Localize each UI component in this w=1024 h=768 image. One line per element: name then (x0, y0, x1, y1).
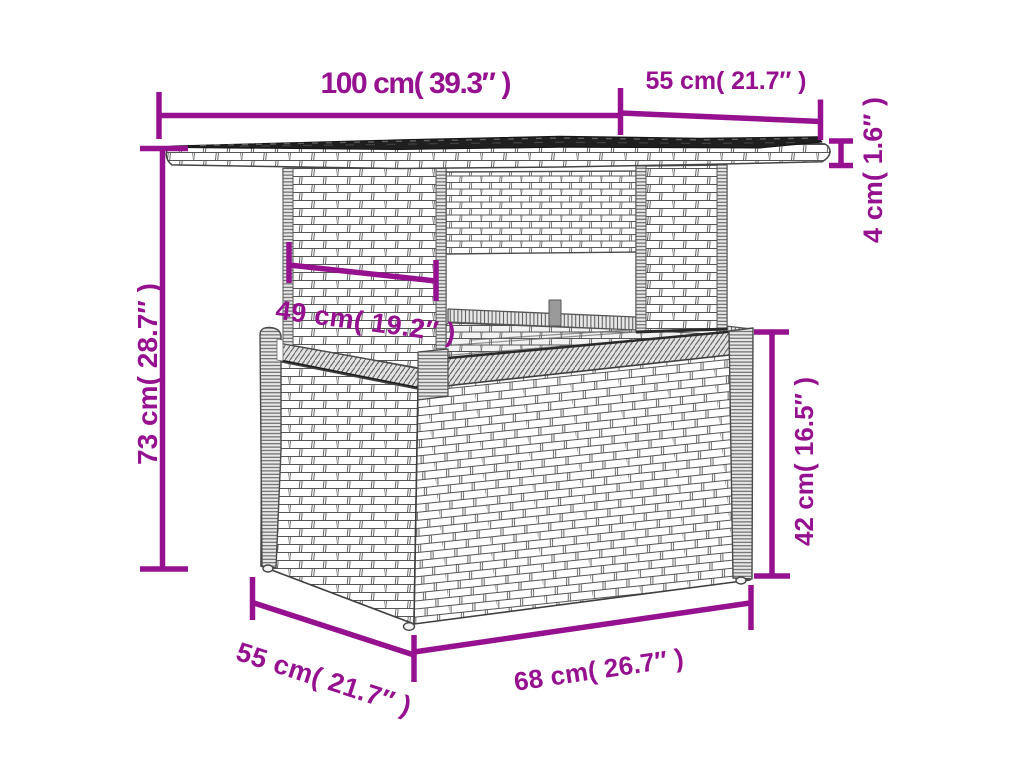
svg-text:55 cm( 21.7″ ): 55 cm( 21.7″ ) (646, 67, 807, 95)
svg-text:4 cm( 1.6″ ): 4 cm( 1.6″ ) (858, 97, 888, 243)
svg-text:73 cm( 28.7″ ): 73 cm( 28.7″ ) (132, 283, 163, 465)
svg-text:42 cm( 16.5″ ): 42 cm( 16.5″ ) (789, 377, 819, 546)
svg-text:68 cm( 26.7″ ): 68 cm( 26.7″ ) (512, 642, 686, 696)
svg-text:100 cm( 39.3″ ): 100 cm( 39.3″ ) (321, 67, 512, 100)
